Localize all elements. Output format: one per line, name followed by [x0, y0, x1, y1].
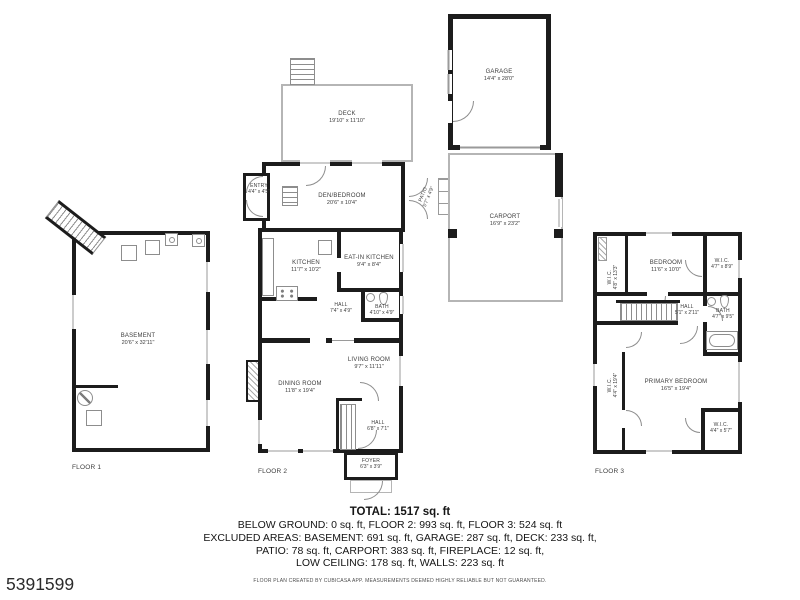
- wall-segment: [336, 398, 339, 452]
- window: [204, 330, 210, 364]
- window: [556, 199, 562, 227]
- window: [70, 295, 76, 329]
- room-dims: 6'3" x 3'9": [346, 464, 396, 470]
- window: [736, 362, 742, 402]
- room-dims: 20'6" x 32'11": [103, 340, 173, 347]
- room-dims: 4'10" x 4'9": [363, 310, 401, 316]
- room-dims: 4'4" x 5'7": [703, 428, 739, 434]
- room-label-garage: GARAGE 14'4" x 28'0": [459, 69, 539, 83]
- room-label-primary-bedroom: PRIMARY BEDROOM 16'5" x 19'4": [628, 379, 724, 393]
- appliance-icon: [121, 245, 137, 261]
- sink-icon: [707, 297, 716, 306]
- room-name: CARPORT: [465, 214, 545, 221]
- room-name: KITCHEN: [276, 260, 336, 267]
- wall-segment: [336, 398, 362, 401]
- wall-segment: [622, 352, 625, 410]
- room-label-foyer: FOYER 6'3" x 3'9": [346, 458, 396, 470]
- room-dims: 4'4" x 19'4": [614, 365, 620, 405]
- stairs-to-basement: [282, 186, 298, 206]
- sink-icon: [366, 293, 375, 302]
- room-dims: 4'8" x 13'3": [614, 257, 620, 297]
- window: [352, 160, 382, 166]
- room-dims: 11'8" x 19'4": [270, 388, 330, 395]
- room-label-den-bedroom: DEN/BEDROOM 20'6" x 10'4": [300, 193, 384, 207]
- total-area-text: TOTAL: 1517 sq. ft: [0, 505, 800, 519]
- room-label-bath-f2: BATH 4'10" x 4'9": [363, 304, 401, 316]
- carport-post: [448, 229, 457, 238]
- room-dims: 9'4" x 8'4": [339, 262, 399, 269]
- room-name: DINING ROOM: [270, 381, 330, 388]
- window: [204, 400, 210, 426]
- floor1-label: FLOOR 1: [72, 464, 101, 471]
- fireplace: [246, 360, 260, 402]
- wall-segment: [555, 153, 563, 197]
- floor3-label: FLOOR 3: [595, 468, 624, 475]
- window: [591, 364, 597, 386]
- room-label-wic-f3-top: W.I.C. 4'7" x 8'9": [704, 258, 740, 270]
- washer-icon: [165, 233, 178, 246]
- door-arc: [364, 481, 383, 500]
- deck-stairs: [290, 58, 315, 85]
- room-label-wic-f3-left-lower: W.I.C. 4'4" x 19'4": [608, 365, 620, 405]
- door-opening: [445, 101, 452, 123]
- room-dims: 4'7" x 8'9": [704, 264, 740, 270]
- wall-segment: [625, 236, 628, 296]
- window: [445, 74, 452, 94]
- room-label-living-room: LIVING ROOM 9'7" x 11'11": [339, 357, 399, 371]
- disclaimer-text: FLOOR PLAN CREATED BY CUBICASA APP. MEAS…: [0, 578, 800, 584]
- wall-segment: [701, 408, 742, 412]
- kitchen-counter: [262, 238, 274, 296]
- floor2-label: FLOOR 2: [258, 468, 287, 475]
- room-dims: 7'4" x 4'9": [321, 308, 361, 314]
- room-label-entry: ENTRY 4'4" x 4'5": [240, 183, 278, 195]
- wall-segment: [361, 318, 402, 322]
- wall-segment: [622, 428, 625, 452]
- bathtub-icon: [706, 331, 738, 350]
- room-label-dining-room: DINING ROOM 11'8" x 19'4": [270, 381, 330, 395]
- listing-id: 5391599: [6, 574, 74, 595]
- room-label-carport: CARPORT 16'9" x 23'2": [465, 214, 545, 228]
- room-name: BASEMENT: [103, 333, 173, 340]
- window: [268, 448, 298, 454]
- room-label-kitchen: KITCHEN 11'7" x 10'2": [276, 260, 336, 274]
- room-dims: 5'1" x 2'11": [667, 310, 707, 316]
- room-label-bath-f3: BATH 4'7" x 9'5": [705, 308, 741, 320]
- room-dims: 16'5" x 19'4": [628, 386, 724, 393]
- dryer-icon: [192, 234, 205, 247]
- wall-segment: [72, 385, 118, 388]
- room-dims: 4'4" x 4'5": [240, 189, 278, 195]
- room-dims: 19'10" x 11'10": [307, 118, 387, 125]
- wall-segment: [703, 352, 742, 356]
- room-label-wic-f3-bottom: W.I.C. 4'4" x 5'7": [703, 422, 739, 434]
- room-label-eat-in-kitchen: EAT-IN KITCHEN 9'4" x 8'4": [339, 255, 399, 269]
- summary-line-4: LOW CEILING: 178 sq. ft, WALLS: 223 sq. …: [0, 557, 800, 570]
- room-name: GARAGE: [459, 69, 539, 76]
- room-label-wic-f3-left-upper: W.I.C. 4'8" x 13'3": [608, 257, 620, 297]
- room-label-hall-f3: HALL 5'1" x 2'11": [667, 304, 707, 316]
- room-name: DECK: [307, 111, 387, 118]
- room-dims: 4'7" x 9'5": [705, 314, 741, 320]
- room-name: LIVING ROOM: [339, 357, 399, 364]
- window: [332, 338, 354, 343]
- garage-door: [460, 144, 540, 151]
- wall-segment: [593, 321, 678, 325]
- window: [303, 448, 333, 454]
- stairwell: [340, 404, 356, 450]
- room-dims: 16'9" x 23'2": [465, 221, 545, 228]
- room-dims: 11'6" x 10'0": [631, 267, 701, 274]
- room-name: BEDROOM: [631, 260, 701, 267]
- floor-plan-canvas: BASEMENT 20'6" x 32'11" FLOOR 1 DECK 19'…: [0, 0, 800, 600]
- room-name: DEN/BEDROOM: [300, 193, 384, 200]
- summary-line-2: EXCLUDED AREAS: BASEMENT: 691 sq. ft, GA…: [0, 532, 800, 545]
- wall-segment: [262, 338, 310, 343]
- utility-box-icon: [86, 410, 102, 426]
- appliance-icon: [145, 240, 160, 255]
- room-label-hall-f2a: HALL 7'4" x 4'9": [321, 302, 361, 314]
- window: [445, 50, 452, 70]
- kitchen-table: [318, 240, 332, 255]
- carport-post: [554, 229, 563, 238]
- room-dims: 9'7" x 11'11": [339, 364, 399, 371]
- room-label-deck: DECK 19'10" x 11'10": [307, 111, 387, 125]
- wall-segment: [597, 292, 647, 296]
- room-label-hall-f2b: HALL 6'8" x 7'1": [358, 420, 398, 432]
- electrical-meter-icon: [77, 390, 93, 406]
- window: [646, 448, 672, 454]
- room-dims: 6'8" x 7'1": [358, 426, 398, 432]
- window: [400, 244, 406, 272]
- summary-line-1: BELOW GROUND: 0 sq. ft, FLOOR 2: 993 sq.…: [0, 519, 800, 532]
- window: [646, 230, 672, 236]
- room-name: PRIMARY BEDROOM: [628, 379, 724, 386]
- room-dims: 20'6" x 10'4": [300, 200, 384, 207]
- room-name: EAT-IN KITCHEN: [339, 255, 399, 262]
- room-dims: 11'7" x 10'2": [276, 267, 336, 274]
- summary-line-3: PATIO: 78 sq. ft, CARPORT: 383 sq. ft, F…: [0, 545, 800, 558]
- window: [256, 420, 262, 444]
- room-label-basement: BASEMENT 20'6" x 32'11": [103, 333, 173, 347]
- stove-icon: [276, 286, 298, 301]
- window: [204, 262, 210, 292]
- room-label-bedroom: BEDROOM 11'6" x 10'0": [631, 260, 701, 274]
- room-dims: 14'4" x 28'0": [459, 76, 539, 83]
- low-ceiling-hatch: [598, 237, 607, 261]
- area-summary: TOTAL: 1517 sq. ft BELOW GROUND: 0 sq. f…: [0, 505, 800, 584]
